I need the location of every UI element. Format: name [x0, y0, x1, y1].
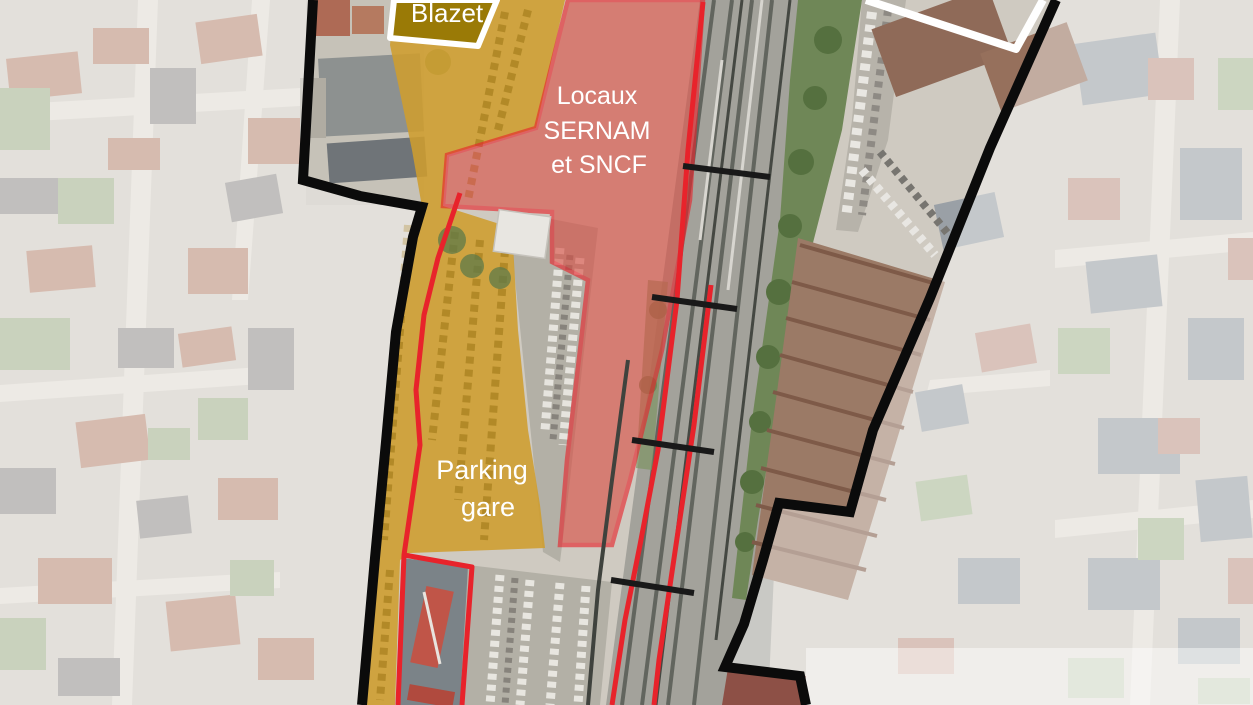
- label-parking-line1: Parking: [436, 455, 528, 485]
- label-parking-line2: gare: [461, 492, 515, 522]
- map-canvas: Blazet Locaux SERNAM et SNCF Parking gar…: [0, 0, 1253, 705]
- white-roof-building: [493, 210, 550, 259]
- fade-band-bottom-right: [806, 648, 1253, 705]
- label-sernam-line1: Locaux: [557, 82, 638, 110]
- aerial-map: Blazet Locaux SERNAM et SNCF Parking gar…: [0, 0, 1253, 705]
- notch-building: [396, 558, 468, 705]
- label-sernam-line3: et SNCF: [551, 151, 647, 179]
- label-sernam-line2: SERNAM: [544, 117, 651, 145]
- label-blazet: Blazet: [411, 0, 484, 28]
